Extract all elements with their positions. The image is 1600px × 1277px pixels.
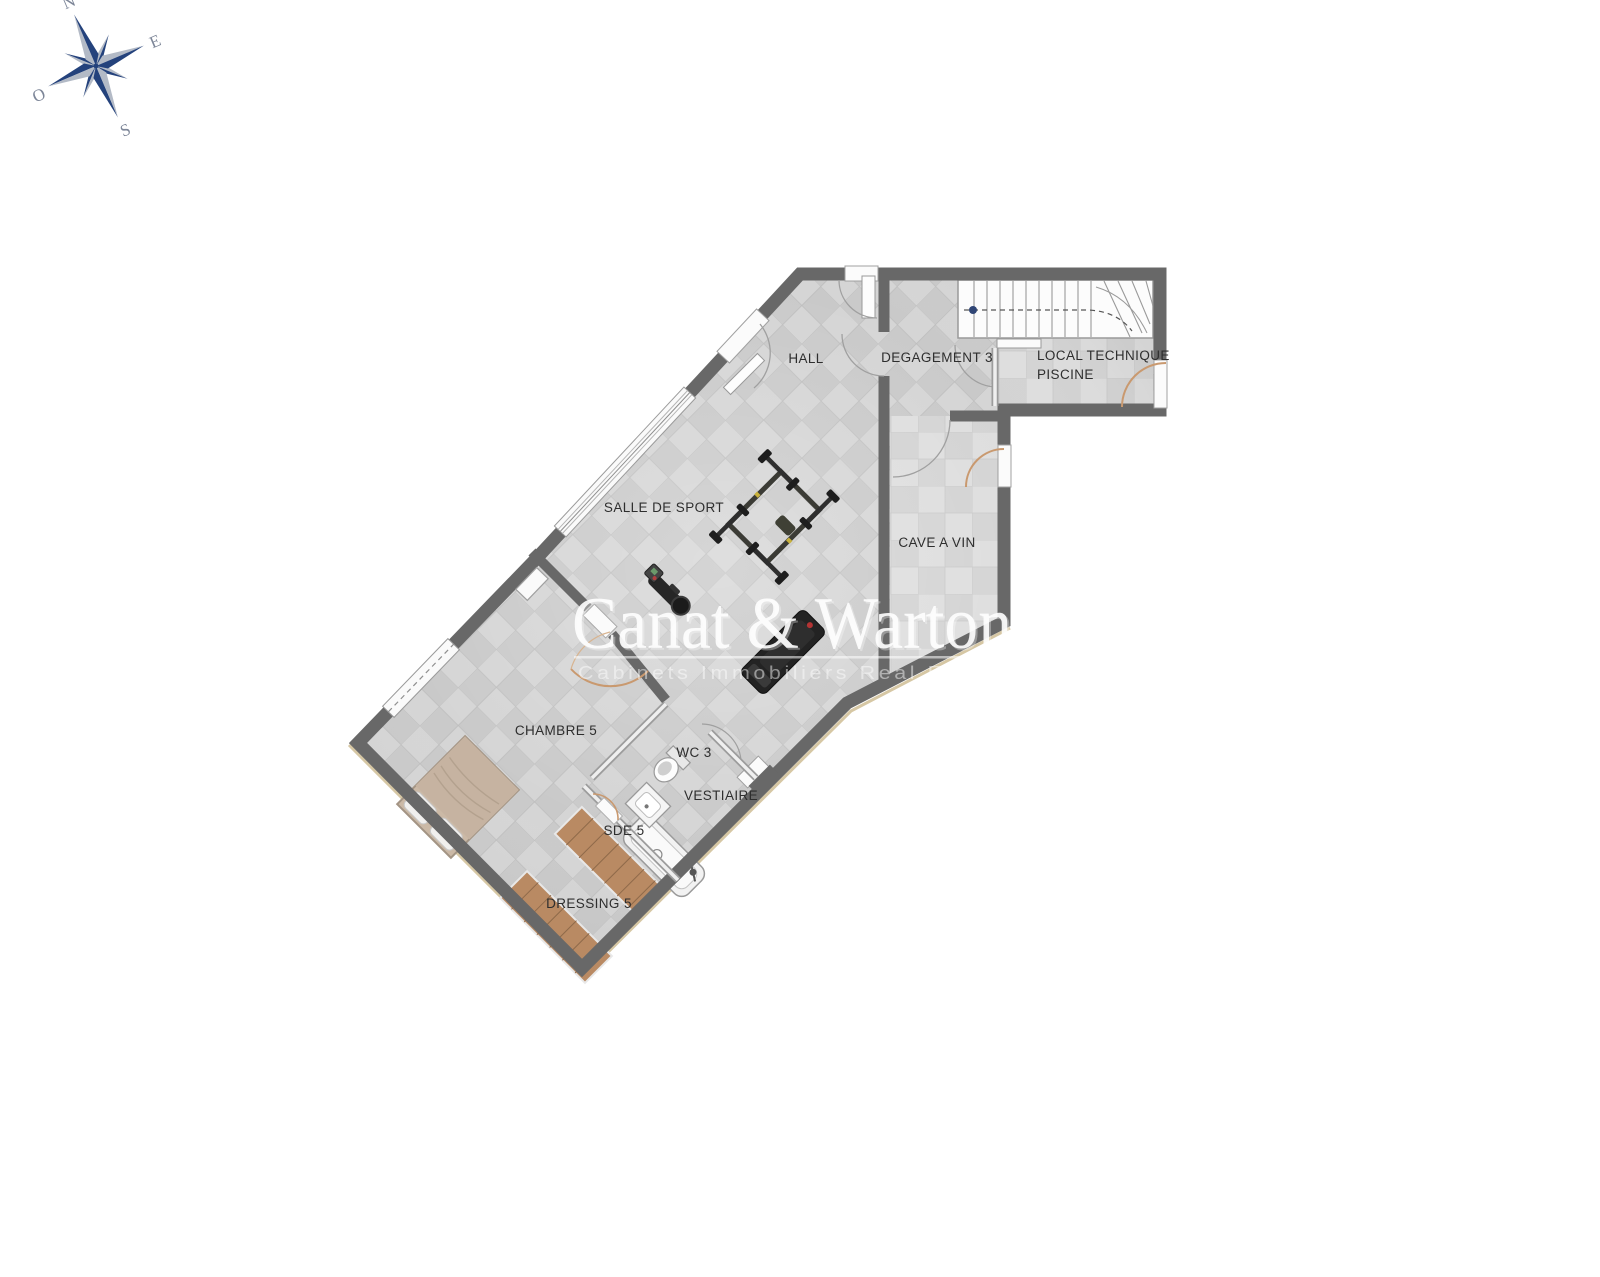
floorplan-page: HALL DEGAGEMENT 3 LOCAL TECHNIQUE PISCIN… bbox=[0, 0, 1600, 1277]
door-leaf-local-technique bbox=[997, 339, 1041, 348]
watermark-tagline: Cabinets Immobiliers Real Estate bbox=[578, 663, 1010, 683]
door-leaf bbox=[862, 276, 875, 318]
room-label-dressing: DRESSING 5 bbox=[546, 896, 632, 911]
room-label-chambre: CHAMBRE 5 bbox=[515, 723, 597, 738]
stair-start-dot bbox=[969, 306, 977, 314]
room-label-sde: SDE 5 bbox=[603, 823, 644, 838]
watermark: Canat & Warton Canat & Warton Cabinets I… bbox=[572, 583, 1014, 683]
compass-rose: N E S O bbox=[1, 0, 191, 167]
watermark-underline bbox=[574, 656, 1012, 659]
compass-letter-e: E bbox=[147, 31, 164, 53]
room-label-wc: WC 3 bbox=[676, 745, 711, 760]
room-label-degagement: DEGAGEMENT 3 bbox=[881, 350, 993, 365]
compass-letter-n: N bbox=[59, 0, 78, 13]
compass-letter-s: S bbox=[117, 120, 133, 141]
compass-letter-o: O bbox=[29, 84, 48, 106]
floorplan-canvas: HALL DEGAGEMENT 3 LOCAL TECHNIQUE PISCIN… bbox=[0, 0, 1600, 1277]
room-label-hall: HALL bbox=[788, 351, 823, 366]
room-label-local-technique: LOCAL TECHNIQUE bbox=[1037, 348, 1170, 363]
room-label-salle-de-sport: SALLE DE SPORT bbox=[604, 500, 724, 515]
staircase bbox=[958, 280, 1153, 348]
watermark-title: Canat & Warton bbox=[572, 583, 1012, 665]
room-label-piscine: PISCINE bbox=[1037, 367, 1094, 382]
room-label-cave-a-vin: CAVE A VIN bbox=[898, 535, 975, 550]
door-opening bbox=[998, 445, 1011, 487]
door-opening bbox=[1154, 360, 1167, 408]
room-label-vestiaire: VESTIAIRE bbox=[684, 788, 758, 803]
